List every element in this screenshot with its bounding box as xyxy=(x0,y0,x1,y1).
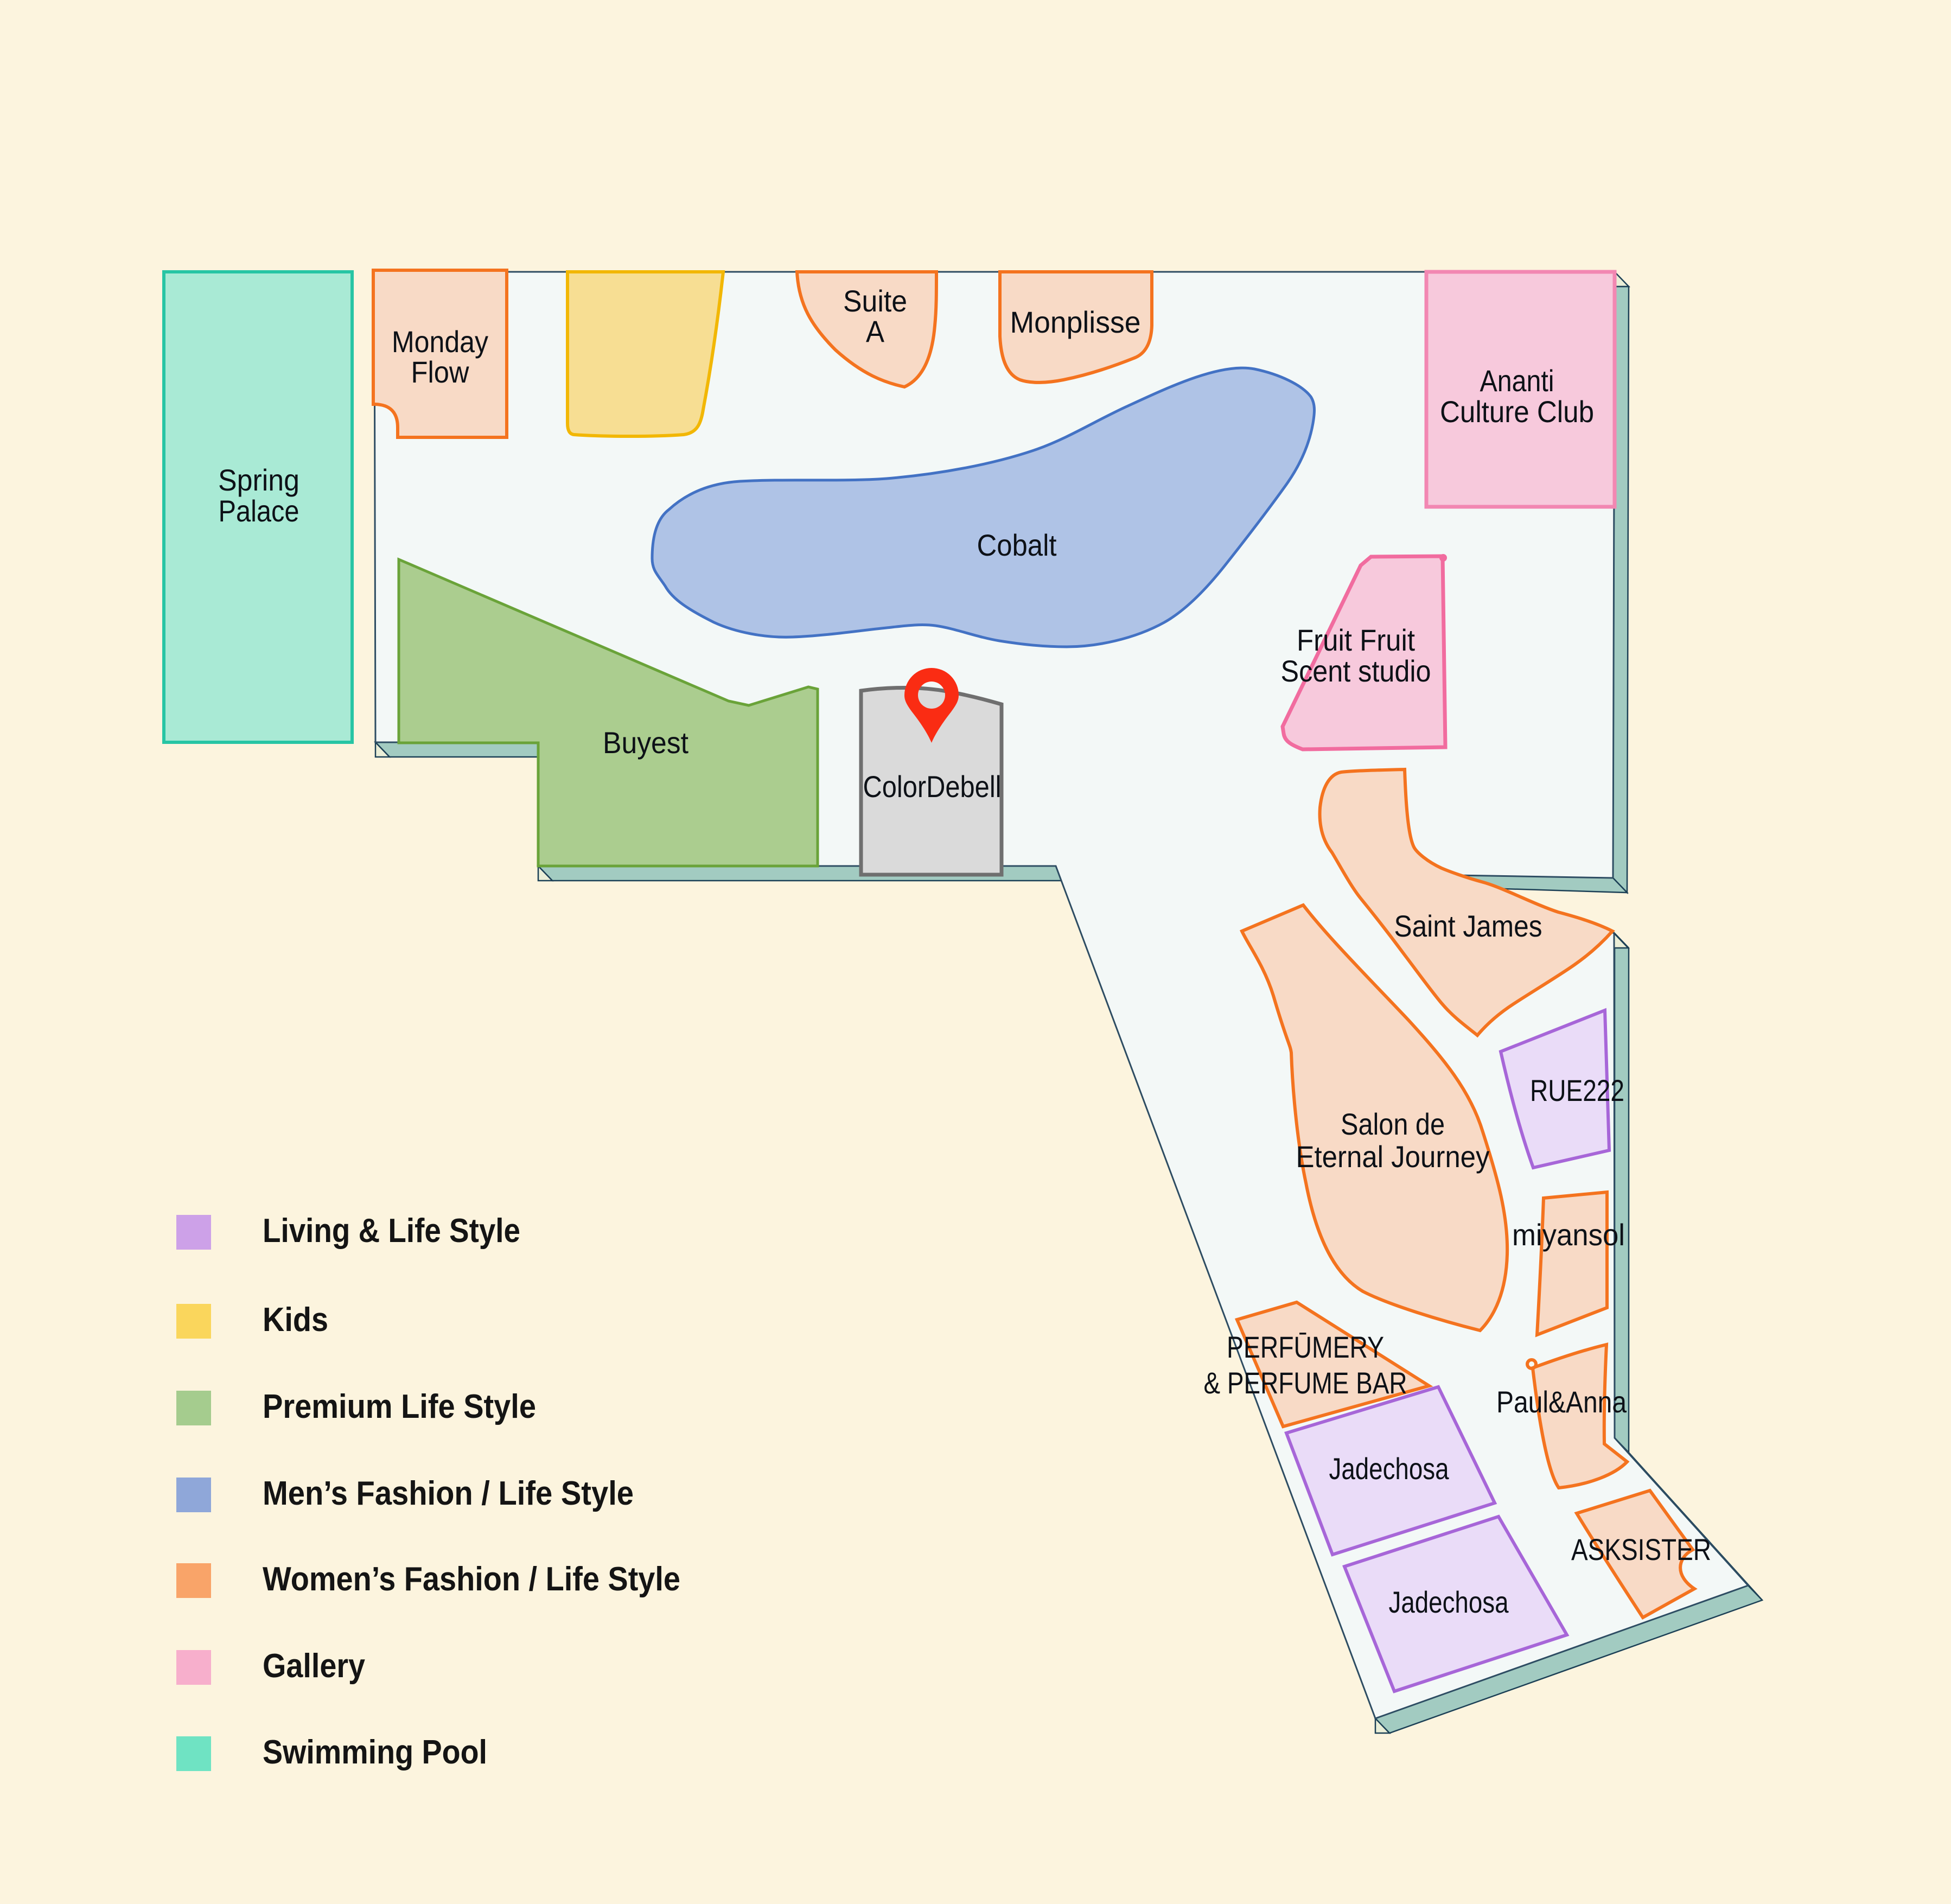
svg-text:Scent studio: Scent studio xyxy=(1281,654,1431,688)
svg-text:Fruit Fruit: Fruit Fruit xyxy=(1297,623,1415,657)
svg-text:Buyest: Buyest xyxy=(603,725,688,760)
svg-text:Saint James: Saint James xyxy=(1394,909,1542,943)
svg-text:miyansol: miyansol xyxy=(1512,1218,1625,1252)
svg-text:Flow: Flow xyxy=(411,355,470,389)
svg-text:Palace: Palace xyxy=(219,494,299,528)
svg-text:Women’s Fashion / Life Style: Women’s Fashion / Life Style xyxy=(263,1561,680,1598)
svg-text:A: A xyxy=(866,314,885,348)
svg-text:Jadechosa: Jadechosa xyxy=(1389,1585,1509,1619)
svg-text:ASKSISTER: ASKSISTER xyxy=(1571,1532,1711,1566)
svg-text:Culture Club: Culture Club xyxy=(1440,394,1594,429)
svg-text:Cobalt: Cobalt xyxy=(977,528,1057,562)
svg-text:Premium Life Style: Premium Life Style xyxy=(263,1388,536,1425)
svg-text:Kids: Kids xyxy=(263,1301,328,1339)
svg-text:Spring: Spring xyxy=(218,463,299,497)
svg-text:Paul&Anna: Paul&Anna xyxy=(1496,1385,1627,1419)
svg-text:Monplisse: Monplisse xyxy=(1010,305,1141,339)
svg-text:Gallery: Gallery xyxy=(263,1647,365,1685)
svg-text:Salon de: Salon de xyxy=(1341,1107,1445,1141)
svg-text:Jadechosa: Jadechosa xyxy=(1329,1451,1450,1486)
svg-text:PERFŪMERY: PERFŪMERY xyxy=(1227,1330,1384,1364)
svg-text:Monday: Monday xyxy=(392,324,488,359)
svg-text:RUE222: RUE222 xyxy=(1530,1073,1624,1107)
svg-text:ColorDebell: ColorDebell xyxy=(863,769,1002,804)
svg-text:Living & Life Style: Living & Life Style xyxy=(263,1212,520,1250)
svg-text:Swimming Pool: Swimming Pool xyxy=(263,1734,487,1771)
svg-text:Men’s Fashion / Life Style: Men’s Fashion / Life Style xyxy=(263,1475,634,1512)
svg-text:Suite: Suite xyxy=(843,284,907,318)
svg-text:Eternal Journey: Eternal Journey xyxy=(1296,1139,1490,1174)
svg-text:Ananti: Ananti xyxy=(1480,364,1554,398)
svg-text:& PERFUME BAR: & PERFUME BAR xyxy=(1204,1366,1407,1400)
